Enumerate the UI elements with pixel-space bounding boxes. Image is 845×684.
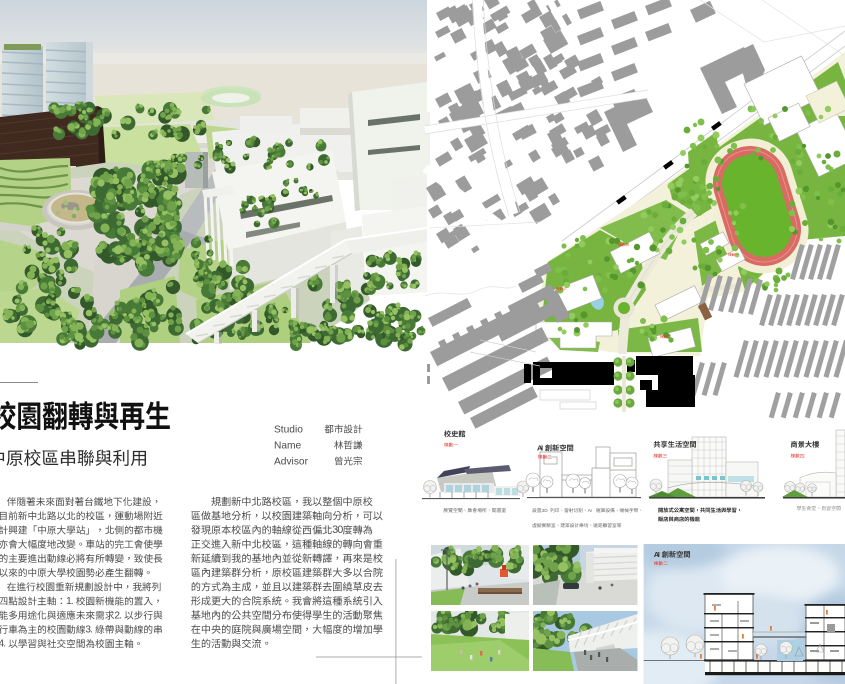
svg-text:.: . [119, 610, 122, 621]
svg-text:.: . [71, 596, 74, 607]
svg-text:.: . [90, 625, 93, 636]
svg-text:0: 0 [337, 524, 343, 536]
svg-text:Advisor: Advisor [274, 457, 309, 468]
svg-text:.: . [3, 639, 6, 650]
svg-text:Name: Name [274, 441, 302, 452]
svg-text:I: I [541, 444, 543, 453]
svg-text:Studio: Studio [274, 425, 303, 436]
svg-text:D: D [544, 508, 548, 514]
svg-text:I: I [658, 550, 660, 559]
svg-text:I: I [590, 508, 591, 514]
